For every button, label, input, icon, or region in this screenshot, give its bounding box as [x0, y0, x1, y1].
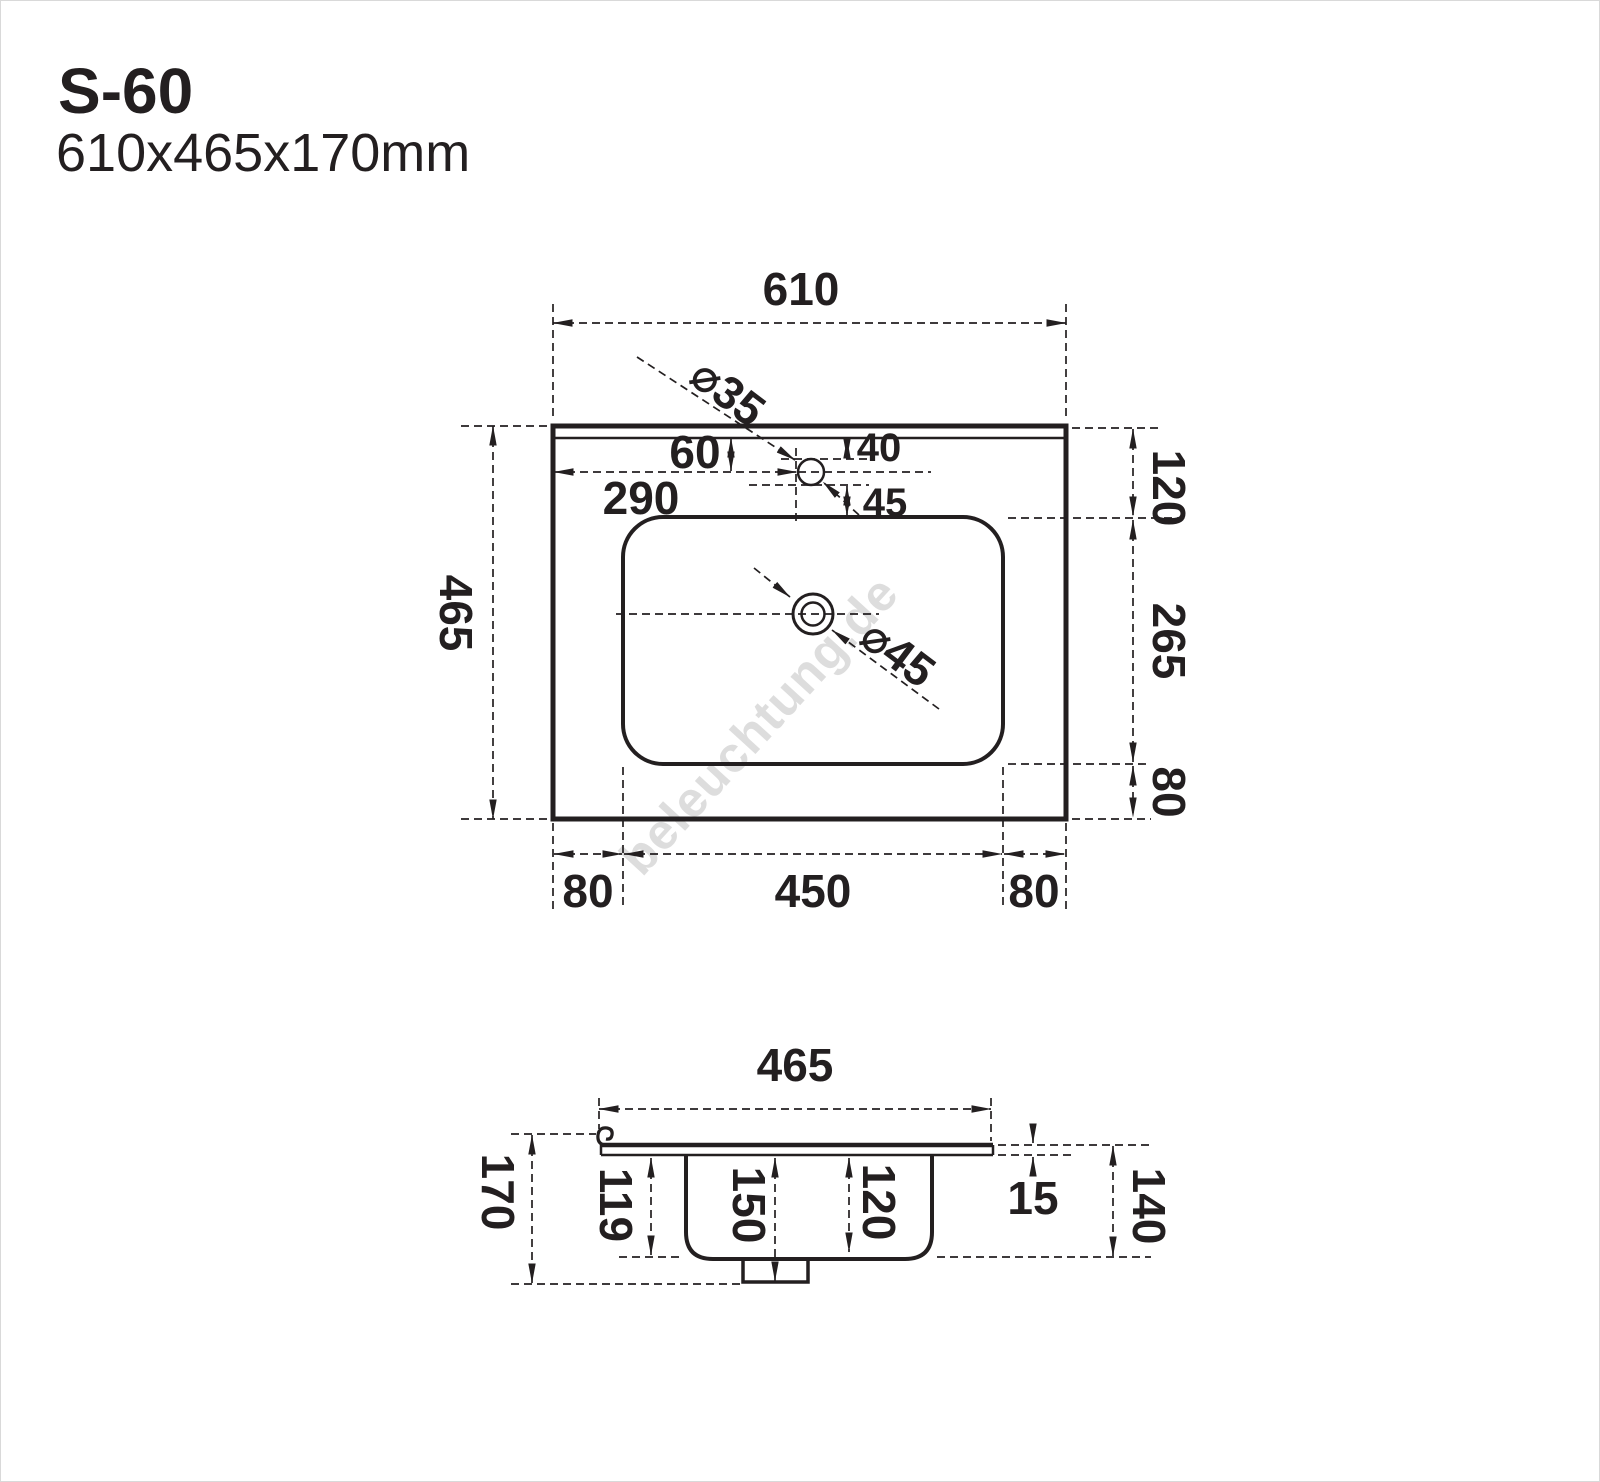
- dim-label-overall-depth: 465: [430, 575, 482, 652]
- dim-label-back-to-basin: 120: [1143, 450, 1195, 527]
- dim-label-height-right: 140: [1123, 1168, 1175, 1245]
- dim-label-faucet-from-back: 60: [669, 426, 720, 478]
- top-view: 610 465 120 265 80 80 450 80 60 290: [430, 263, 1195, 917]
- dim-label-faucet-gap-above: 40: [857, 426, 902, 470]
- side-view: 465 170 119 150 120 15 140: [472, 1039, 1175, 1284]
- watermark: beleuchtung.de: [609, 565, 909, 886]
- dim-label-bowl-inner-depth: 120: [853, 1164, 905, 1241]
- dim-label-depth-to-drain: 150: [723, 1167, 775, 1244]
- dim-label-overall-width: 610: [763, 263, 840, 315]
- dim-label-faucet-diameter: ⌀35: [681, 348, 775, 437]
- dim-label-overall-height: 170: [472, 1154, 524, 1231]
- dim-label-top-thickness: 15: [1007, 1172, 1058, 1224]
- page-title: S-60: [58, 55, 193, 127]
- dim-label-basin-depth: 265: [1143, 603, 1195, 680]
- leader-line-drain: [754, 568, 790, 597]
- page-dimensions: 610x465x170mm: [56, 123, 470, 183]
- dim-label-faucet-gap-below: 45: [863, 481, 908, 525]
- drawing-page: S-60 610x465x170mm beleuchtung.de 610 46…: [0, 0, 1600, 1482]
- dim-label-right-margin: 80: [1008, 865, 1059, 917]
- dim-label-bowl-depth-left: 119: [590, 1168, 642, 1242]
- dim-label-faucet-from-left: 290: [603, 472, 680, 524]
- leader-line-faucet: [823, 482, 859, 515]
- dim-label-side-width: 465: [757, 1039, 834, 1091]
- technical-drawing: S-60 610x465x170mm beleuchtung.de 610 46…: [1, 1, 1600, 1482]
- front-lip-hook: [598, 1128, 615, 1145]
- dim-label-basin-width: 450: [775, 865, 852, 917]
- dim-label-left-margin: 80: [562, 865, 613, 917]
- dim-label-basin-to-front: 80: [1143, 766, 1195, 817]
